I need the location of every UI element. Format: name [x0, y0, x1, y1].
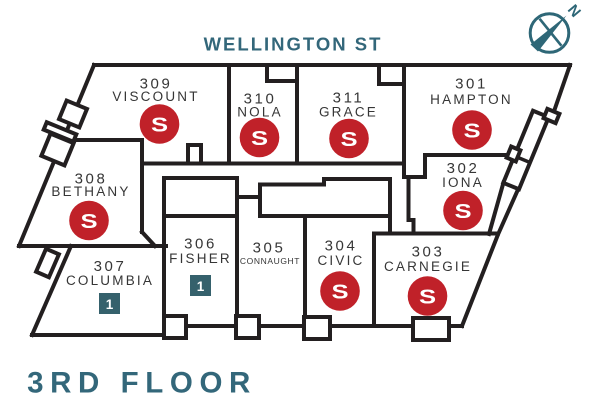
svg-text:FISHER: FISHER: [169, 251, 232, 266]
svg-text:S: S: [151, 113, 168, 136]
svg-text:306: 306: [184, 236, 217, 253]
svg-text:CIVIC: CIVIC: [317, 253, 364, 268]
svg-text:303: 303: [412, 244, 445, 261]
svg-text:301: 301: [455, 76, 488, 93]
svg-text:S: S: [419, 285, 436, 308]
svg-text:S: S: [340, 128, 357, 151]
svg-text:S: S: [331, 280, 348, 303]
svg-text:IONA: IONA: [442, 175, 484, 190]
svg-text:COLUMBIA: COLUMBIA: [66, 273, 154, 288]
svg-text:1: 1: [106, 297, 114, 312]
svg-text:CARNEGIE: CARNEGIE: [384, 259, 472, 274]
svg-text:S: S: [454, 200, 471, 223]
svg-text:305: 305: [253, 240, 286, 257]
svg-text:GRACE: GRACE: [319, 105, 378, 120]
svg-text:NOLA: NOLA: [237, 105, 283, 120]
svg-text:HAMPTON: HAMPTON: [430, 92, 513, 107]
svg-text:WELLINGTON ST: WELLINGTON ST: [204, 34, 383, 55]
svg-text:S: S: [80, 210, 97, 233]
svg-text:304: 304: [325, 238, 358, 255]
svg-text:BETHANY: BETHANY: [51, 184, 130, 199]
svg-text:VISCOUNT: VISCOUNT: [112, 89, 199, 104]
svg-text:CONNAUGHT: CONNAUGHT: [240, 256, 300, 266]
svg-text:3RD FLOOR: 3RD FLOOR: [27, 367, 257, 400]
svg-text:S: S: [251, 127, 268, 150]
svg-text:1: 1: [197, 279, 205, 294]
svg-text:S: S: [463, 119, 480, 142]
